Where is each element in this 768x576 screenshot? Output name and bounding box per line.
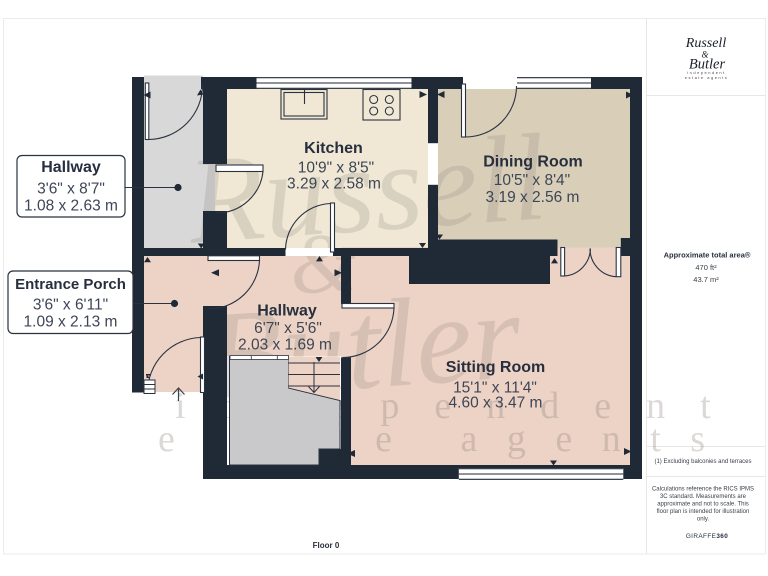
svg-text:1.09 x 2.13 m: 1.09 x 2.13 m <box>24 314 118 331</box>
svg-text:470 ft²: 470 ft² <box>695 263 717 272</box>
svg-text:approximate and not to scale.: approximate and not to scale. This <box>657 502 749 508</box>
svg-text:Sitting Room: Sitting Room <box>446 359 546 376</box>
svg-text:3'6" x 8'7": 3'6" x 8'7" <box>37 181 105 198</box>
svg-text:Approximate total area®: Approximate total area® <box>664 251 751 260</box>
svg-text:only.: only. <box>697 517 710 523</box>
svg-text:GIRAFFE360: GIRAFFE360 <box>686 533 728 540</box>
svg-text:Dining Room: Dining Room <box>483 154 583 171</box>
svg-text:3C standard. Measurements are: 3C standard. Measurements are <box>660 494 747 500</box>
svg-text:Calculations reference the RIC: Calculations reference the RICS IPMS <box>652 487 754 493</box>
svg-text:Kitchen: Kitchen <box>304 140 363 157</box>
svg-text:3'6" x 6'11": 3'6" x 6'11" <box>33 297 108 314</box>
svg-text:10'5" x 8'4": 10'5" x 8'4" <box>494 172 570 189</box>
svg-text:6'7" x 5'6": 6'7" x 5'6" <box>254 320 322 337</box>
svg-text:1.08 x 2.63 m: 1.08 x 2.63 m <box>24 198 118 215</box>
svg-text:estate agents: estate agents <box>685 75 729 80</box>
svg-text:Hallway: Hallway <box>41 159 101 176</box>
svg-text:43.7 m²: 43.7 m² <box>693 275 719 284</box>
svg-text:(1) Excluding balconies and te: (1) Excluding balconies and terraces <box>654 459 751 465</box>
svg-text:3.19 x 2.56 m: 3.19 x 2.56 m <box>486 189 580 206</box>
svg-text:4.60 x 3.47 m: 4.60 x 3.47 m <box>449 395 543 412</box>
svg-text:Entrance Porch: Entrance Porch <box>15 276 126 293</box>
svg-text:3.29 x 2.58 m: 3.29 x 2.58 m <box>287 176 381 193</box>
svg-text:10'9" x 8'5": 10'9" x 8'5" <box>298 160 374 177</box>
svg-text:Hallway: Hallway <box>257 303 317 320</box>
svg-text:floor plan is intended for ill: floor plan is intended for illustration <box>657 509 750 515</box>
svg-text:Floor 0: Floor 0 <box>313 541 340 550</box>
svg-text:2.03 x 1.69 m: 2.03 x 1.69 m <box>238 337 332 354</box>
